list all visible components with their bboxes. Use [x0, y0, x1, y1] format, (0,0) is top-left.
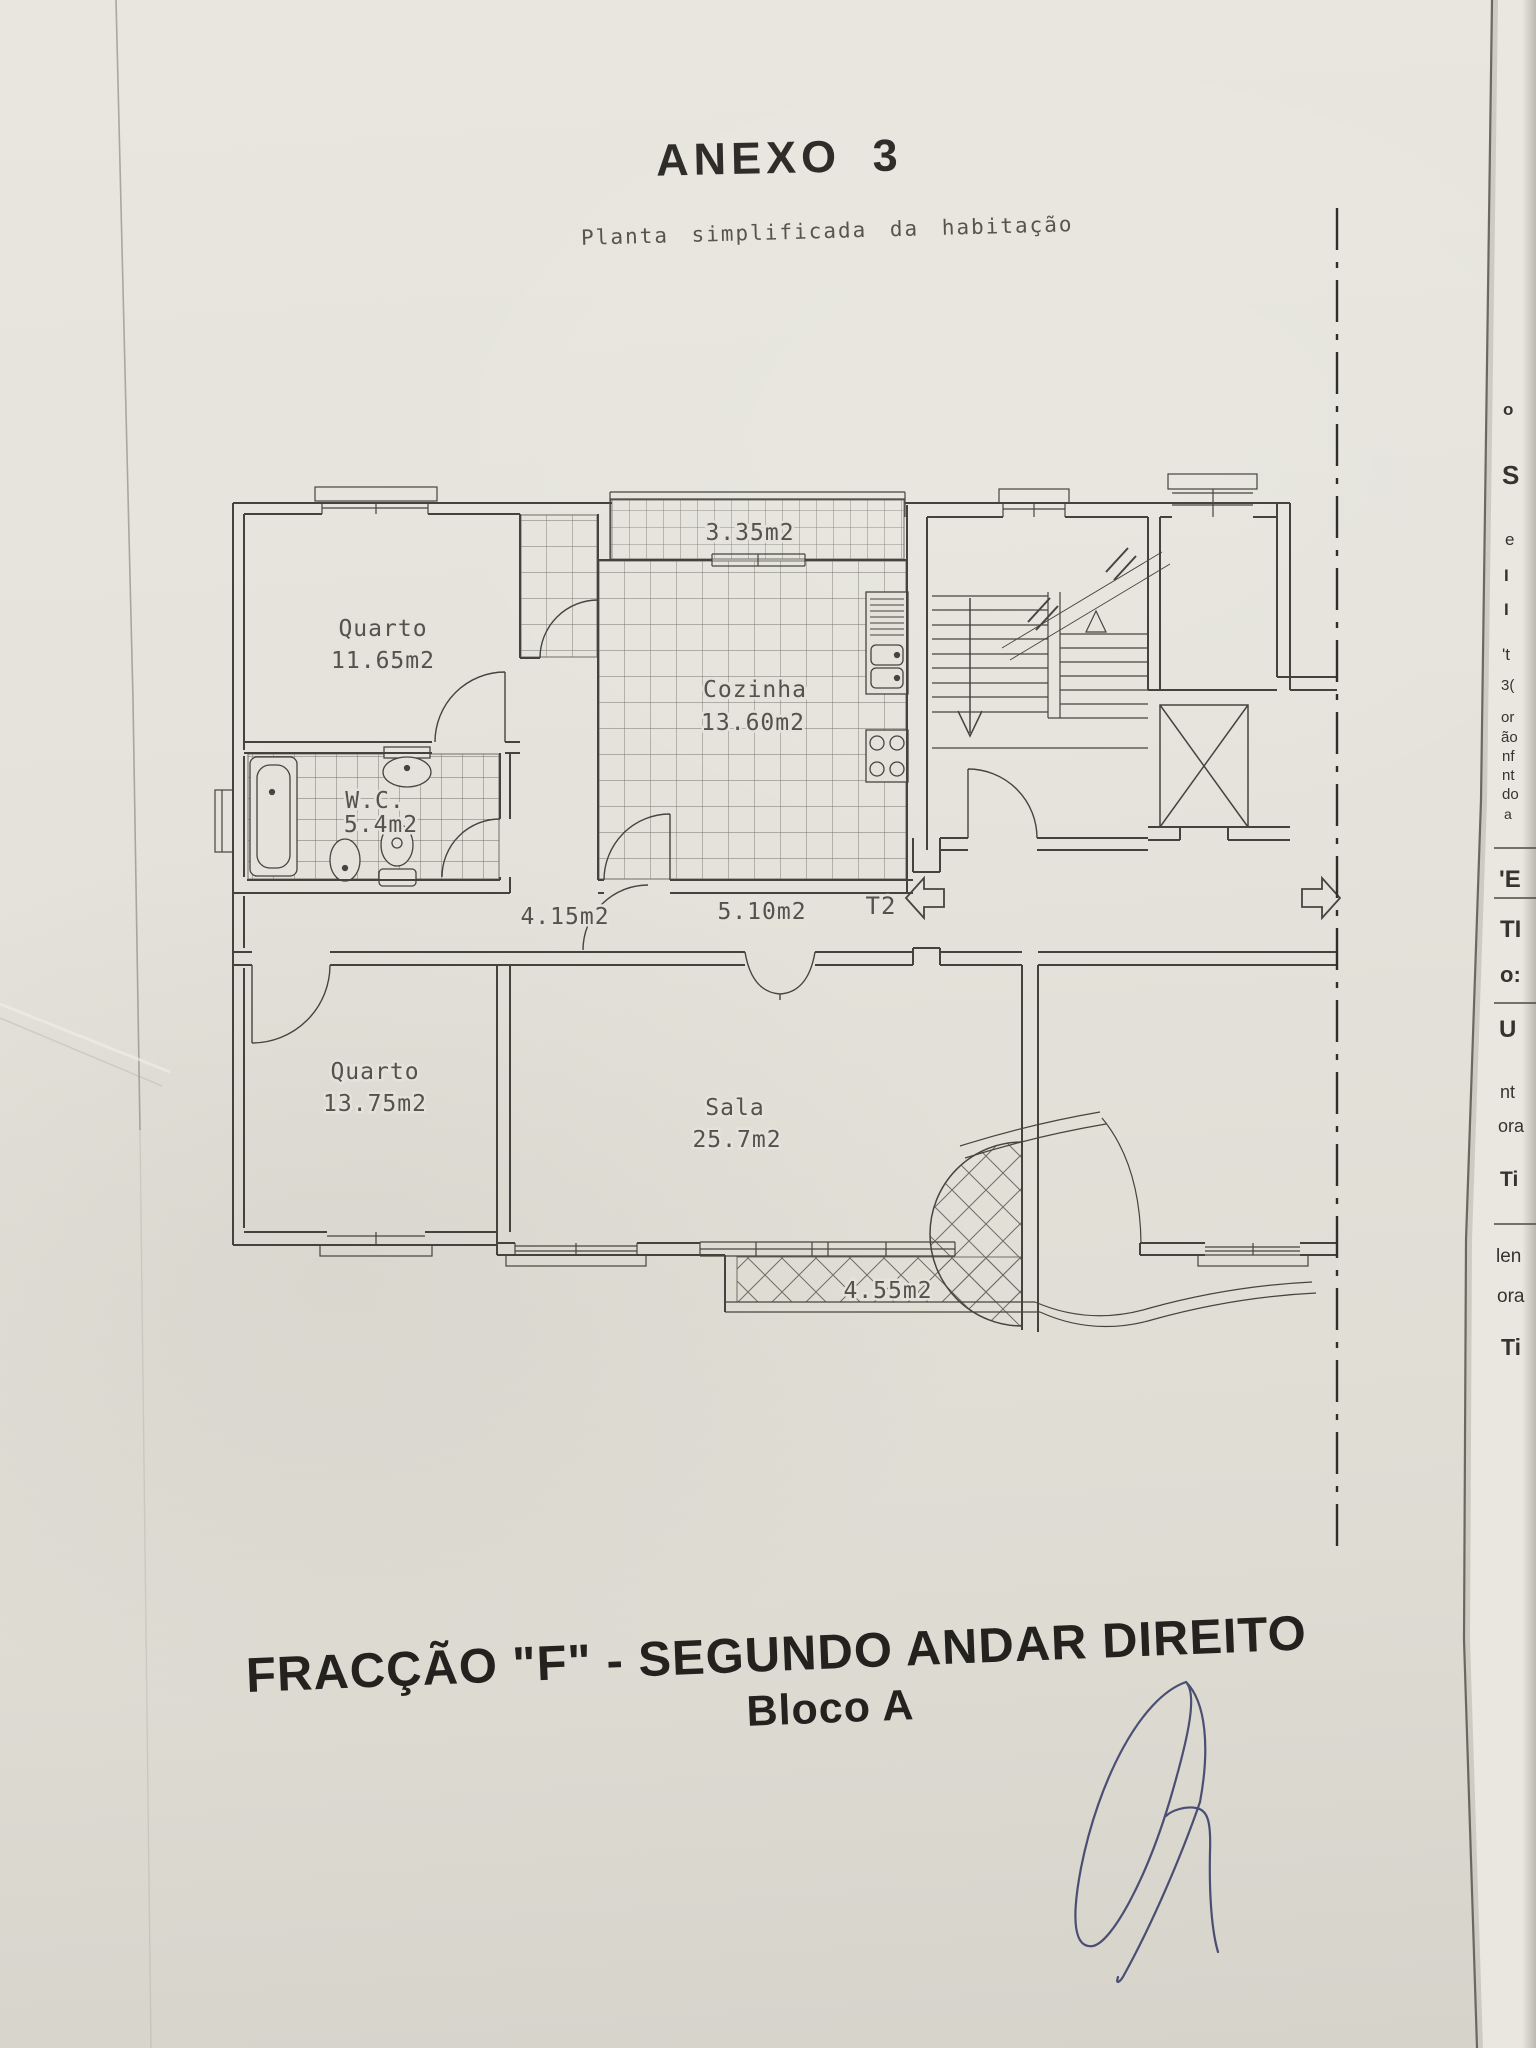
area-bottom-balcony: 4.55m2 [843, 1278, 932, 1304]
elevator-x-icon [1160, 705, 1248, 827]
edge-text-fragment: 't [1502, 645, 1510, 665]
room-label-quarto1: Quarto [338, 616, 427, 642]
area-corridor: 5.10m2 [717, 899, 806, 925]
room-area-quarto1: 11.65m2 [331, 648, 435, 674]
paper-fold-lines [0, 0, 170, 2048]
room-label-sala: Sala [705, 1095, 764, 1121]
room-label-cozinha: Cozinha [703, 677, 807, 703]
edge-text-fragment: I [1504, 600, 1509, 620]
edge-text-fragment: 'E [1499, 866, 1521, 894]
double-door-sala [745, 952, 815, 1000]
edge-text-fragment: 3( [1501, 677, 1514, 694]
room-area-cozinha: 13.60m2 [701, 710, 805, 736]
edge-text-fragment: TI [1500, 916, 1521, 944]
signature [1075, 1682, 1218, 1982]
edge-text-fragment: ão [1501, 729, 1518, 746]
edge-text-fragment: o: [1500, 962, 1521, 988]
entry-arrow-right-icon [1302, 878, 1340, 918]
edge-text-fragment: do [1502, 786, 1519, 803]
entry-arrows [906, 878, 1340, 918]
scanned-floor-plan-page: o S e I I 't 3( or ão nf nt do a 'E TI o… [0, 0, 1536, 2048]
edge-text-fragment: U [1499, 1016, 1516, 1044]
room-area-sala: 25.7m2 [692, 1127, 781, 1153]
page-stack-shadow [1522, 0, 1536, 2048]
edge-text-fragment: ora [1498, 1116, 1524, 1137]
bidet-icon [330, 839, 360, 881]
edge-text-fragment: Ti [1500, 1168, 1518, 1192]
area-top-balcony: 3.35m2 [705, 520, 794, 546]
edge-text-fragment: len [1496, 1246, 1521, 1268]
room-label-wc: W.C. [345, 788, 404, 814]
level-marker-triangle [1086, 611, 1106, 632]
edge-text-fragment: o [1503, 400, 1513, 420]
edge-text-fragment: nt [1502, 767, 1515, 784]
edge-text-fragment: ora [1497, 1286, 1524, 1308]
unit-type-label: T2 [866, 892, 897, 920]
stairs [932, 548, 1170, 748]
edge-text-fragment: Ti [1501, 1334, 1521, 1361]
edge-text-fragment: I [1504, 566, 1509, 586]
edge-text-fragment: or [1501, 709, 1514, 726]
elevator [1160, 705, 1248, 827]
edge-text-fragment: e [1505, 530, 1514, 550]
stair-direction-arrow [958, 598, 982, 736]
scanned-page: ANEXO 3 Planta simplificada da habitação [0, 0, 1536, 2048]
room-area-quarto2: 13.75m2 [323, 1091, 427, 1117]
edge-text-fragment: S [1502, 460, 1519, 491]
room-area-wc: 5.4m2 [344, 812, 418, 838]
stair-break-lines [1028, 548, 1136, 630]
area-hall: 4.15m2 [520, 904, 609, 930]
edge-text-fragment: nf [1502, 748, 1515, 765]
floor-plan-drawing: Quarto 11.65m2 3.35m2 Cozinha 13.60m2 W.… [0, 0, 1536, 2048]
edge-text-fragment: nt [1500, 1082, 1515, 1103]
kitchen-fixtures [866, 592, 908, 782]
curved-bay-wall [1102, 1118, 1141, 1243]
edge-text-fragment: a [1504, 806, 1512, 822]
room-label-quarto2: Quarto [330, 1059, 419, 1085]
entry-arrow-left-icon [906, 878, 944, 918]
